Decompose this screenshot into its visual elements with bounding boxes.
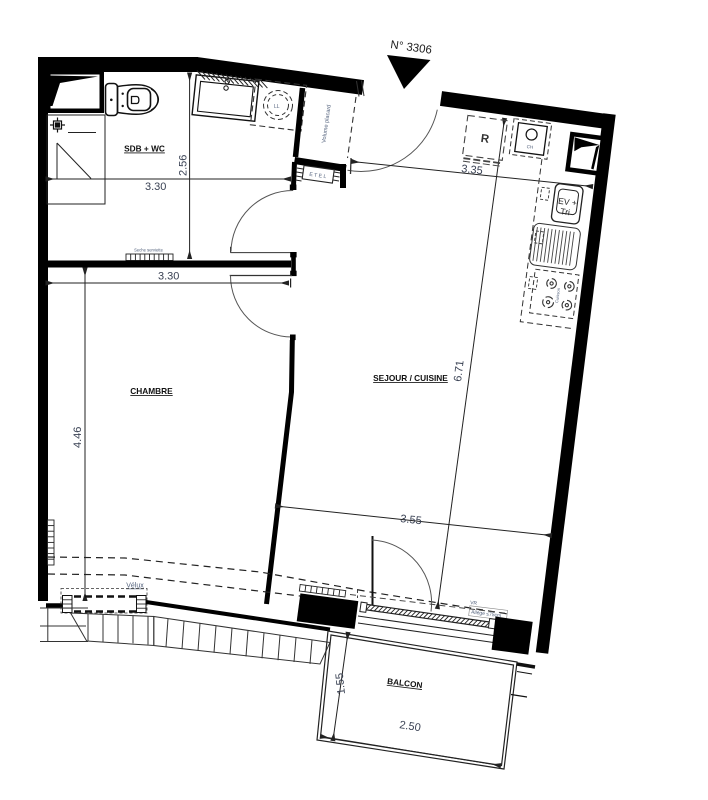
svg-text:3.30: 3.30 (158, 271, 179, 283)
svg-text:Tri: Tri (560, 206, 571, 217)
svg-text:LL: LL (274, 104, 280, 110)
svg-text:3.55: 3.55 (400, 513, 423, 527)
svg-text:CHAMBRE: CHAMBRE (130, 386, 173, 396)
svg-text:3.35: 3.35 (461, 163, 484, 177)
svg-text:1.55: 1.55 (334, 672, 348, 695)
svg-text:CH: CH (526, 144, 533, 150)
svg-text:2.56: 2.56 (178, 155, 190, 176)
svg-text:4.46: 4.46 (72, 427, 84, 448)
svg-text:Seche serviette: Seche serviette (134, 248, 164, 253)
svg-text:SDB + WC: SDB + WC (124, 144, 165, 154)
svg-text:SEJOUR / CUISINE: SEJOUR / CUISINE (373, 373, 448, 383)
svg-text:3.30: 3.30 (145, 181, 166, 193)
